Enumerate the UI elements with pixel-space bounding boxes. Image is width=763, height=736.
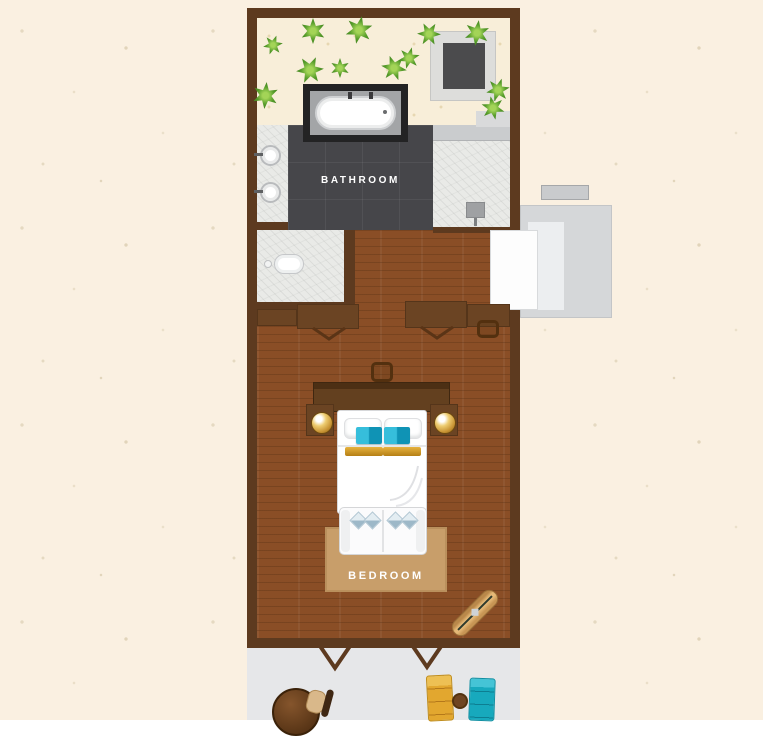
- sofa: [339, 507, 427, 555]
- entry-bench: [541, 185, 589, 200]
- floor-lamp-icon: [466, 202, 485, 218]
- bed: [337, 410, 427, 514]
- wall-bottom: [247, 638, 520, 648]
- sofa-armrest: [341, 510, 350, 552]
- diamond-pillow-icon: [363, 511, 381, 529]
- door-swing-icon: [318, 646, 352, 672]
- sun-lounger-yellow: [426, 674, 454, 721]
- wall-right-upper: [510, 8, 520, 230]
- wall-left: [247, 8, 257, 648]
- wall-top: [247, 8, 520, 18]
- wall-toilet-top: [257, 222, 288, 230]
- desk-chair-icon: [371, 362, 393, 382]
- floor-lamp-stem: [474, 218, 477, 226]
- bathtub-faucet-icon: [369, 92, 373, 99]
- wardrobe-swing-icon: [420, 326, 454, 340]
- bathtub-faucet-icon: [348, 92, 352, 99]
- vanity-counter: [257, 125, 288, 230]
- sink-faucet-icon: [254, 153, 263, 156]
- wall-toilet-right: [344, 230, 355, 302]
- entry-doorway: [490, 230, 538, 310]
- wardrobe-right: [405, 301, 467, 328]
- toilet-bowl: [274, 254, 304, 274]
- toilet-icon: [262, 250, 306, 278]
- sun-lounger-teal: [468, 678, 495, 722]
- outdoor-shower-tray: [443, 43, 485, 89]
- corner-stool-icon: [477, 320, 499, 338]
- paddle-center-accent: [472, 609, 479, 616]
- door-swing-icon: [410, 645, 444, 671]
- bedside-lamp-icon: [311, 412, 333, 434]
- wall-right-lower: [510, 310, 520, 648]
- duvet-fold-lines: [386, 456, 424, 508]
- bedroom-label: BEDROOM: [325, 570, 447, 582]
- outdoor-shower-platform: [430, 31, 496, 101]
- sink-icon: [260, 182, 281, 203]
- sink-icon: [260, 145, 281, 166]
- wardrobe-left: [297, 304, 359, 329]
- bench-strip: [433, 125, 511, 141]
- wardrobe-swing-icon: [312, 327, 346, 341]
- folded-towel-icon: [356, 427, 382, 444]
- bathroom-label: BATHROOM: [288, 175, 433, 186]
- sofa-seam: [382, 510, 384, 552]
- sink-faucet-icon: [254, 190, 263, 193]
- bathtub: [303, 84, 408, 142]
- floor-plan-canvas: BATHROOM: [0, 0, 763, 720]
- side-table: [452, 693, 468, 709]
- bathtub-drain-icon: [383, 110, 387, 114]
- bedside-lamp-icon: [434, 412, 456, 434]
- closet-left: [257, 309, 297, 326]
- toilet-flush: [264, 260, 272, 268]
- sofa-armrest: [416, 510, 425, 552]
- folded-towel-icon: [384, 427, 410, 444]
